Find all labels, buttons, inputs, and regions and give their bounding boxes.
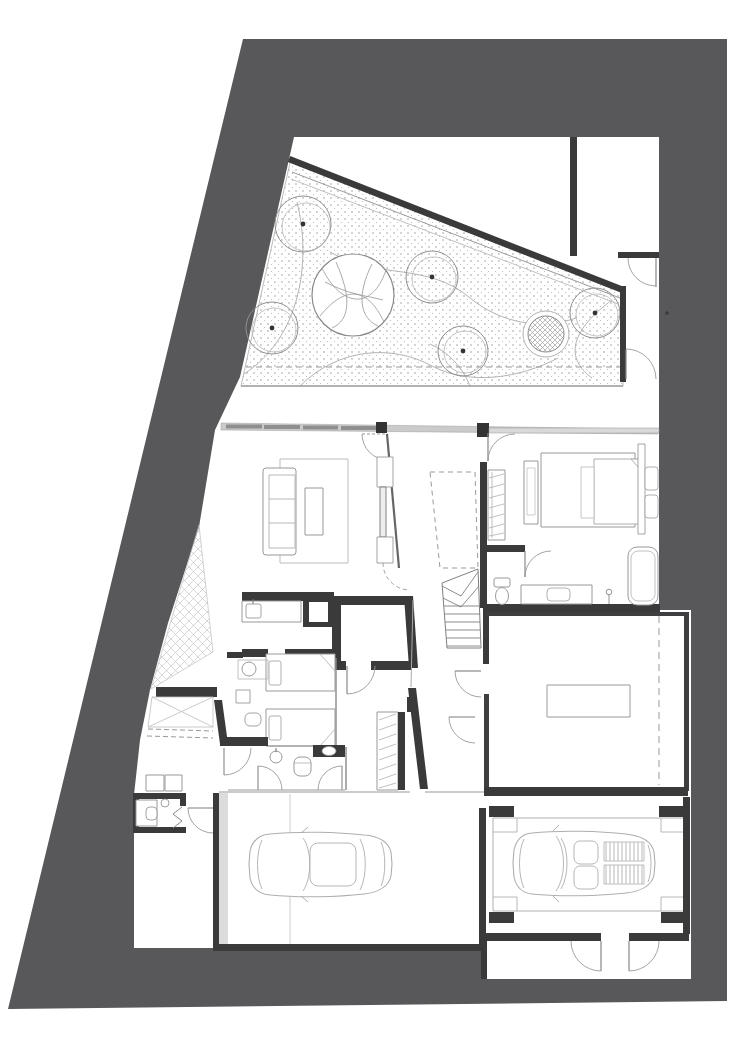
hall-wall-east bbox=[398, 712, 405, 790]
garden-ground bbox=[241, 158, 623, 386]
bigroom-wall-right bbox=[684, 612, 689, 791]
ensuite-door-wall bbox=[483, 545, 525, 552]
car-coupe-roof bbox=[310, 843, 356, 886]
tv-cabinet-upper bbox=[377, 457, 393, 487]
tv-cabinet-lower bbox=[377, 537, 393, 563]
floor-plan-page bbox=[0, 0, 750, 1041]
site-dot-marker bbox=[665, 311, 669, 315]
void-x-cross bbox=[148, 697, 213, 727]
bigroom-table bbox=[547, 685, 630, 717]
kidsbath-basin bbox=[242, 662, 256, 676]
wall-bigroom-west-upper bbox=[483, 612, 489, 664]
garden-door-arc bbox=[626, 349, 656, 379]
window-mullion-2 bbox=[477, 423, 489, 437]
bed-blanket bbox=[581, 467, 594, 518]
garage-right-south-wall-2 bbox=[629, 933, 689, 941]
garage-right-west-wall bbox=[479, 808, 486, 944]
window-frame-2 bbox=[264, 425, 300, 429]
floor-plan-svg bbox=[0, 0, 750, 1041]
window-mullion-1 bbox=[376, 422, 387, 433]
garage-left-west-wall bbox=[213, 793, 219, 950]
window-frame-4 bbox=[341, 426, 376, 430]
kidsbath-toilet bbox=[245, 713, 261, 726]
pantry-wall-right bbox=[404, 596, 418, 668]
bed-bench bbox=[524, 461, 538, 524]
tree-4-trunk-dot bbox=[461, 349, 466, 354]
window-frame-1 bbox=[226, 425, 262, 429]
corridor-top-wall bbox=[618, 252, 659, 258]
tree-2-trunk-dot bbox=[270, 326, 275, 331]
bed-headboard bbox=[638, 444, 645, 534]
sofa bbox=[263, 468, 296, 555]
hall-closet bbox=[377, 712, 398, 790]
car-roadster-engine-grille-1 bbox=[604, 842, 644, 861]
garage-right-post-1 bbox=[489, 806, 514, 817]
dumbwaiter-inner bbox=[309, 602, 328, 622]
bath2-toilet bbox=[294, 757, 311, 776]
bed-pillow-2 bbox=[645, 495, 658, 518]
void-dash-1 bbox=[148, 729, 213, 731]
tree-5-trunk-dot bbox=[593, 311, 598, 316]
garage-right-post-3 bbox=[489, 912, 514, 923]
kidsbath-shower bbox=[236, 690, 250, 703]
office-door-jamb bbox=[180, 793, 186, 806]
bigroom-wall-left-lower bbox=[484, 694, 489, 791]
office-wall-top bbox=[133, 793, 186, 799]
big-tree-canopy bbox=[312, 254, 394, 336]
shrub-hatched bbox=[528, 316, 564, 352]
tv-screen bbox=[380, 487, 386, 537]
bigroom-wall-bottom bbox=[484, 787, 688, 796]
tree-3-trunk-dot bbox=[430, 275, 435, 280]
hall-diagonal-wall bbox=[408, 688, 428, 789]
bath2-door-2-arc bbox=[318, 766, 342, 790]
wardrobe bbox=[488, 470, 505, 540]
bathtub-outer bbox=[628, 547, 658, 605]
corridor-west-wall bbox=[570, 137, 577, 256]
garage-right-post-2 bbox=[659, 806, 686, 817]
void-wall bbox=[156, 687, 217, 697]
wall-bedroom-west bbox=[480, 462, 487, 608]
hall-dashed-door-arc bbox=[383, 563, 410, 590]
office-bifold-door bbox=[173, 807, 182, 828]
bigroom-wall-top bbox=[487, 612, 688, 616]
kidsroom-wall-1 bbox=[242, 649, 268, 657]
pantry-wall-bottom-right bbox=[371, 661, 412, 670]
wall-ensuite-south bbox=[483, 604, 660, 612]
vestibule-door-2-arc bbox=[629, 941, 659, 971]
office-chair bbox=[146, 807, 157, 820]
hall-door-arc bbox=[449, 717, 475, 743]
bedroom-window bbox=[489, 428, 659, 433]
toilet-bowl bbox=[496, 588, 509, 605]
bath2-basin bbox=[270, 751, 282, 763]
bigroom-door-arc bbox=[455, 671, 481, 697]
garage-right-east-wall bbox=[683, 797, 690, 934]
office-wall-bottom bbox=[133, 827, 186, 833]
void-dash-2 bbox=[147, 736, 213, 738]
pantry-wall-top bbox=[332, 596, 412, 605]
toilet-tank bbox=[494, 578, 510, 587]
garden-east-wall bbox=[620, 286, 626, 382]
kidsbath-wall-south bbox=[220, 737, 268, 746]
vestibule-door-1-arc bbox=[571, 941, 601, 971]
kidsbath-wall-top bbox=[227, 652, 243, 658]
tree-1-trunk-dot bbox=[301, 222, 306, 227]
office-cabinet-2 bbox=[165, 775, 182, 791]
bedroom-door-arc bbox=[488, 434, 515, 461]
garage-right-south-wall-1 bbox=[483, 933, 601, 941]
void-dashed-outline bbox=[430, 472, 478, 568]
vestibule-west-wall bbox=[481, 941, 487, 979]
ensuite-door-arc bbox=[525, 551, 551, 577]
coffee-table bbox=[305, 488, 323, 535]
car-roadster-seat-2 bbox=[574, 866, 598, 889]
bed-pillow-1 bbox=[645, 467, 658, 490]
office-cabinet-1 bbox=[146, 775, 164, 791]
garage-left-floor-strip bbox=[219, 793, 228, 948]
bath2-door-1-arc bbox=[258, 766, 282, 790]
living-door-arc bbox=[362, 434, 388, 460]
car-roadster-seat-1 bbox=[574, 841, 598, 864]
stairs-outline bbox=[442, 569, 481, 648]
office-door-arc bbox=[188, 808, 213, 833]
bath-faucet-dot bbox=[606, 589, 612, 595]
bath2-counter-basin bbox=[322, 747, 336, 756]
bed-duvet bbox=[594, 459, 639, 524]
garage-left-bottom-wall bbox=[213, 944, 487, 951]
car-roadster-engine-grille-2 bbox=[604, 865, 644, 884]
window-frame-3 bbox=[303, 426, 338, 430]
corridor-door-arc-2 bbox=[224, 748, 251, 775]
pantry-door-arc bbox=[347, 666, 375, 694]
corridor-door-arc bbox=[628, 258, 656, 286]
office-lamp bbox=[161, 799, 169, 807]
